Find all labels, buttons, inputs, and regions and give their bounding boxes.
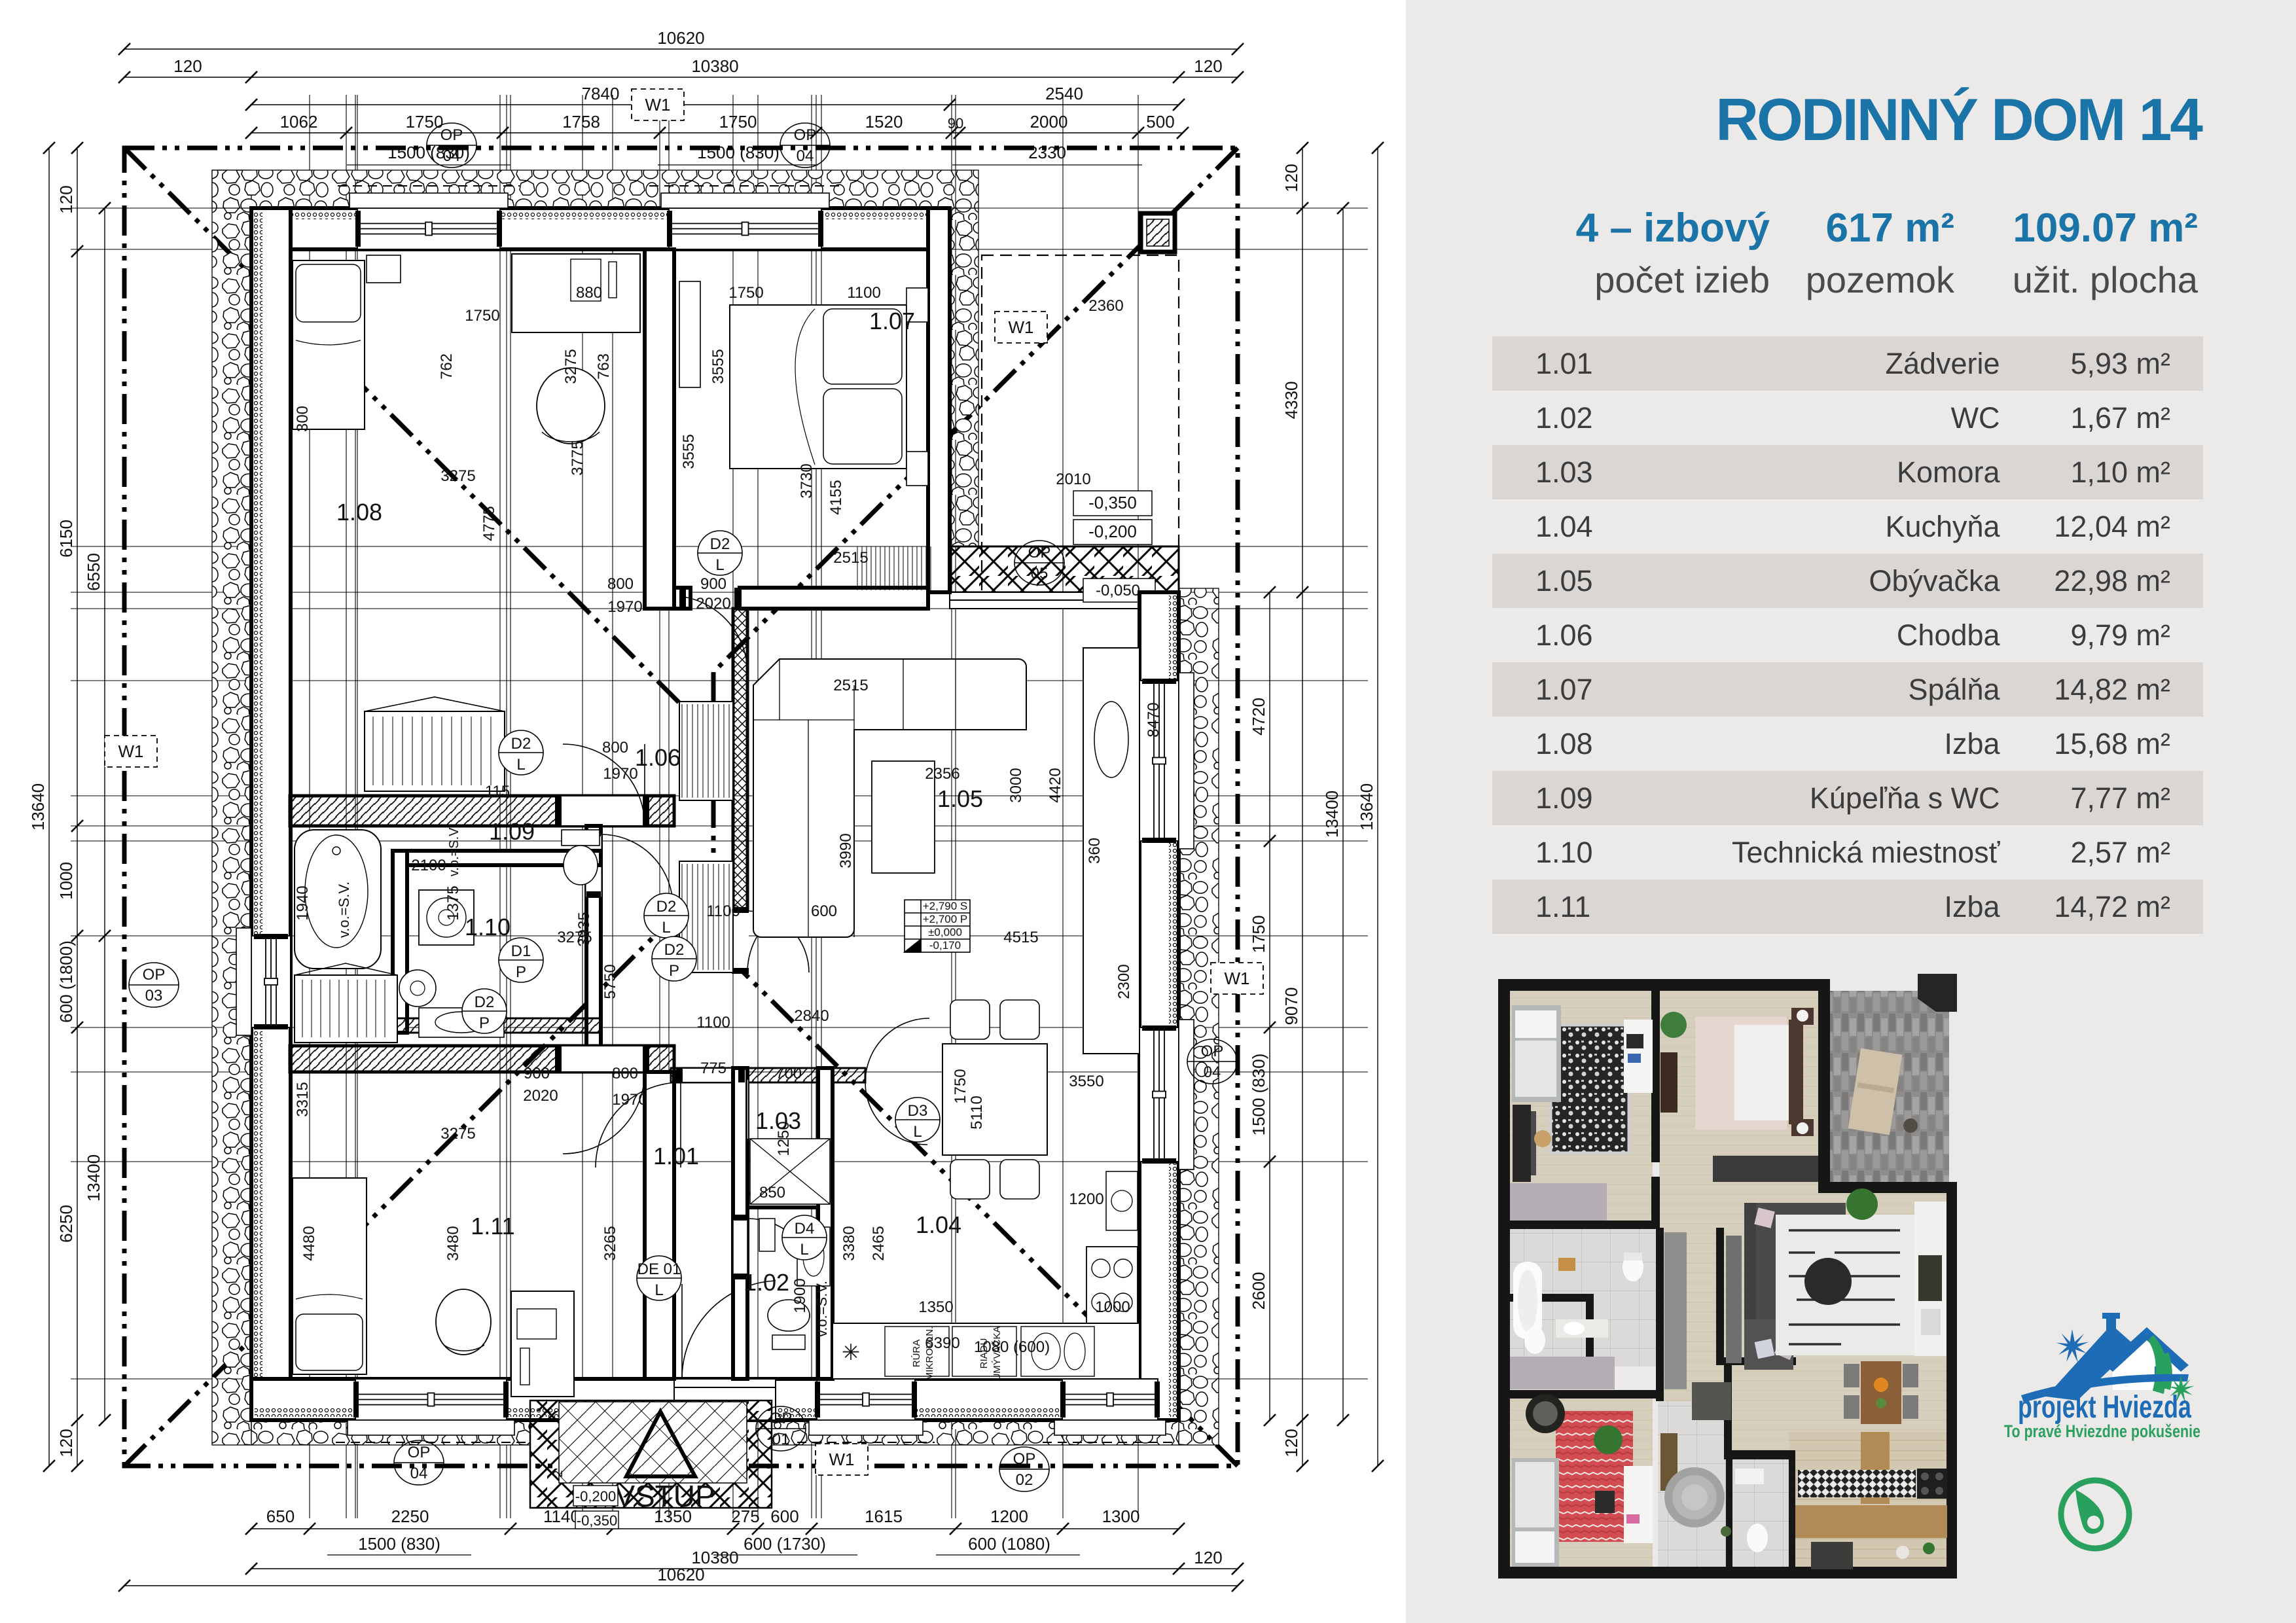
svg-text:1100: 1100 (847, 284, 881, 302)
svg-text:1758: 1758 (562, 112, 600, 132)
svg-text:1.11: 1.11 (471, 1213, 514, 1240)
svg-text:600: 600 (770, 1507, 798, 1526)
svg-text:04: 04 (797, 147, 814, 165)
svg-text:3775: 3775 (569, 440, 586, 475)
svg-text:04: 04 (1204, 1063, 1221, 1081)
svg-text:650: 650 (266, 1507, 295, 1526)
svg-text:D1: D1 (511, 942, 531, 960)
svg-text:1000: 1000 (56, 862, 76, 900)
svg-text:2600: 2600 (1249, 1272, 1268, 1310)
svg-text:6250: 6250 (56, 1205, 76, 1243)
svg-text:W1: W1 (829, 1450, 855, 1469)
svg-text:10620: 10620 (657, 1565, 704, 1584)
svg-text:13640: 13640 (28, 783, 48, 830)
svg-text:v.o.=S.V.: v.o.=S.V. (814, 1281, 830, 1337)
svg-text:3990: 3990 (837, 833, 855, 868)
svg-text:3935: 3935 (575, 912, 593, 946)
svg-text:3555: 3555 (680, 434, 698, 469)
svg-text:3380: 3380 (840, 1226, 858, 1260)
svg-text:L: L (913, 1123, 922, 1141)
svg-text:600 (1730): 600 (1730) (744, 1534, 826, 1554)
svg-text:1200: 1200 (1069, 1190, 1103, 1208)
svg-text:4515: 4515 (1003, 929, 1038, 946)
svg-text:L: L (655, 1281, 663, 1299)
svg-text:1940: 1940 (294, 885, 312, 920)
svg-text:500: 500 (1146, 112, 1174, 132)
svg-text:+2,700 P: +2,700 P (923, 913, 968, 925)
svg-text:1080 (600): 1080 (600) (974, 1338, 1050, 1356)
svg-text:2515: 2515 (833, 549, 868, 567)
svg-text:1140: 1140 (543, 1507, 580, 1526)
svg-text:1750: 1750 (1249, 916, 1268, 954)
svg-text:D2: D2 (656, 898, 677, 916)
svg-text:850: 850 (759, 1184, 785, 1202)
svg-text:2360: 2360 (1088, 297, 1123, 315)
svg-text:1750: 1750 (406, 112, 444, 132)
svg-text:10620: 10620 (657, 28, 704, 48)
svg-text:115: 115 (485, 783, 510, 800)
svg-text:2100: 2100 (411, 857, 446, 874)
svg-text:1000: 1000 (1095, 1298, 1130, 1316)
svg-text:2020: 2020 (696, 595, 730, 613)
svg-text:05: 05 (1031, 565, 1049, 582)
svg-text:120: 120 (1282, 1429, 1301, 1457)
svg-text:4480: 4480 (300, 1226, 318, 1260)
svg-text:900: 900 (524, 1065, 550, 1082)
svg-text:3275: 3275 (562, 349, 580, 383)
svg-text:800: 800 (602, 739, 628, 757)
svg-text:OP: OP (440, 126, 463, 144)
svg-text:1200: 1200 (990, 1507, 1028, 1526)
svg-text:120: 120 (173, 56, 202, 76)
svg-text:1062: 1062 (280, 112, 318, 132)
svg-text:1350: 1350 (918, 1298, 953, 1316)
svg-text:775: 775 (700, 1060, 726, 1077)
svg-text:7840: 7840 (582, 84, 620, 103)
svg-text:360: 360 (1086, 838, 1103, 864)
svg-text:W1: W1 (645, 95, 671, 115)
svg-text:700: 700 (776, 1065, 802, 1082)
svg-text:2250: 2250 (391, 1507, 429, 1526)
svg-text:1100: 1100 (706, 902, 740, 920)
svg-text:5750: 5750 (601, 964, 619, 999)
svg-text:1750: 1750 (719, 112, 757, 132)
svg-text:1.01: 1.01 (653, 1143, 699, 1169)
svg-text:1900: 1900 (791, 1278, 809, 1313)
svg-text:04: 04 (443, 147, 461, 165)
svg-text:4420: 4420 (1047, 768, 1064, 802)
svg-text:4775: 4775 (480, 506, 498, 541)
svg-text:01: 01 (772, 1431, 790, 1448)
svg-text:3550: 3550 (1069, 1073, 1103, 1090)
svg-text:-0,170: -0,170 (929, 939, 961, 952)
svg-text:W1: W1 (1225, 969, 1250, 988)
svg-text:D2: D2 (664, 941, 685, 959)
svg-text:1970: 1970 (603, 765, 637, 783)
svg-text:1.06: 1.06 (635, 744, 681, 771)
svg-text:2010: 2010 (1056, 471, 1090, 488)
svg-text:2840: 2840 (794, 1007, 829, 1025)
svg-text:1750: 1750 (465, 307, 499, 325)
svg-text:3555: 3555 (709, 349, 727, 383)
svg-text:L: L (662, 919, 670, 936)
svg-text:DE 01: DE 01 (637, 1260, 681, 1278)
svg-text:13640: 13640 (1357, 783, 1376, 830)
svg-text:2465: 2465 (870, 1226, 888, 1260)
svg-text:L: L (800, 1241, 808, 1258)
svg-text:800: 800 (607, 575, 634, 593)
svg-text:OP: OP (770, 1410, 793, 1427)
svg-text:2: 2 (551, 1470, 565, 1477)
svg-text:3315: 3315 (294, 1082, 312, 1116)
svg-text:+2,790 S: +2,790 S (923, 900, 968, 912)
svg-text:RÚRA: RÚRA (911, 1340, 922, 1368)
svg-text:120: 120 (56, 1429, 76, 1457)
svg-text:D3: D3 (908, 1102, 928, 1120)
svg-text:±0,000: ±0,000 (928, 926, 962, 938)
svg-text:800: 800 (612, 1065, 638, 1082)
svg-text:3000: 3000 (1007, 768, 1025, 802)
svg-text:W1: W1 (118, 741, 144, 761)
svg-text:-0,050: -0,050 (1096, 582, 1140, 599)
svg-text:-0,200: -0,200 (575, 1488, 616, 1505)
svg-text:120: 120 (56, 185, 76, 213)
svg-text:300: 300 (294, 406, 312, 432)
svg-text:1.05: 1.05 (937, 785, 983, 812)
svg-text:1520: 1520 (865, 112, 903, 132)
svg-text:D4: D4 (795, 1220, 815, 1238)
svg-text:2540: 2540 (1045, 84, 1083, 103)
svg-text:1250: 1250 (775, 1121, 793, 1156)
svg-text:1.09: 1.09 (489, 818, 535, 845)
svg-text:3730: 3730 (798, 463, 816, 498)
svg-text:VSTUP: VSTUP (615, 1479, 715, 1513)
svg-text:4330: 4330 (1282, 382, 1301, 419)
svg-text:P: P (516, 963, 526, 981)
svg-text:-0,350: -0,350 (1088, 493, 1137, 512)
svg-text:600 (1080): 600 (1080) (968, 1534, 1050, 1554)
svg-text:D2: D2 (710, 535, 730, 553)
svg-text:OP: OP (1201, 1043, 1224, 1060)
svg-text:120: 120 (1194, 56, 1222, 76)
svg-text:880: 880 (576, 284, 602, 302)
svg-text:763: 763 (595, 353, 613, 380)
svg-text:1.10: 1.10 (465, 914, 511, 940)
svg-text:1375: 1375 (444, 885, 462, 920)
svg-text:3275: 3275 (440, 1125, 475, 1143)
svg-text:6390: 6390 (925, 1334, 960, 1352)
svg-text:3265: 3265 (601, 1226, 619, 1260)
svg-text:1750: 1750 (728, 284, 763, 302)
svg-text:900: 900 (700, 575, 726, 593)
svg-text:6550: 6550 (84, 553, 103, 591)
svg-text:1750: 1750 (952, 1069, 969, 1103)
svg-text:OP: OP (1013, 1450, 1036, 1468)
svg-text:2515: 2515 (833, 677, 868, 694)
svg-text:D2: D2 (511, 735, 531, 753)
svg-text:OP: OP (794, 126, 817, 144)
svg-text:275: 275 (731, 1507, 759, 1526)
svg-text:✳: ✳ (842, 1340, 861, 1365)
svg-text:1.07: 1.07 (869, 308, 915, 334)
svg-text:762: 762 (438, 353, 456, 380)
svg-text:OP: OP (1028, 544, 1051, 562)
svg-text:5110: 5110 (968, 1096, 986, 1130)
svg-text:1970: 1970 (612, 1091, 647, 1109)
svg-text:13400: 13400 (1322, 791, 1342, 838)
svg-text:1500 (830): 1500 (830) (358, 1534, 440, 1554)
svg-text:6150: 6150 (56, 520, 76, 558)
svg-text:W1: W1 (1009, 317, 1034, 337)
svg-text:4155: 4155 (827, 480, 845, 514)
svg-text:2020: 2020 (523, 1087, 558, 1105)
svg-text:L: L (516, 756, 525, 774)
svg-text:D2: D2 (475, 993, 495, 1011)
svg-text:1970: 1970 (607, 598, 642, 616)
svg-text:1.02: 1.02 (744, 1269, 789, 1296)
svg-text:2300: 2300 (1115, 964, 1133, 999)
svg-text:v.o.=S.V.: v.o.=S.V. (336, 882, 352, 938)
svg-text:120: 120 (1194, 1548, 1222, 1567)
svg-text:120: 120 (1282, 164, 1301, 192)
svg-text:03: 03 (145, 987, 163, 1005)
svg-text:8470: 8470 (1145, 702, 1162, 737)
svg-text:1615: 1615 (865, 1507, 903, 1526)
svg-text:02: 02 (1016, 1471, 1033, 1489)
svg-text:1.04: 1.04 (916, 1211, 961, 1238)
svg-text:-0,200: -0,200 (1088, 522, 1137, 541)
svg-text:v.o.=S.V.: v.o.=S.V. (447, 825, 461, 876)
svg-text:9070: 9070 (1282, 988, 1301, 1026)
svg-text:4720: 4720 (1249, 698, 1268, 736)
svg-text:600 (1800): 600 (1800) (56, 940, 76, 1023)
svg-text:3480: 3480 (444, 1226, 462, 1260)
svg-text:1300: 1300 (1102, 1507, 1140, 1526)
svg-text:3275: 3275 (440, 467, 475, 485)
svg-text:1500 (830): 1500 (830) (1249, 1054, 1268, 1136)
svg-text:OP: OP (408, 1444, 431, 1461)
svg-text:2000: 2000 (1030, 112, 1068, 132)
svg-text:P: P (669, 962, 679, 980)
svg-text:04: 04 (410, 1465, 428, 1482)
svg-text:600: 600 (811, 902, 837, 920)
svg-text:L: L (715, 556, 724, 574)
svg-text:P: P (479, 1014, 490, 1032)
svg-text:OP: OP (143, 966, 166, 984)
svg-text:projekt Hviezda: projekt Hviezda (2018, 1390, 2191, 1425)
svg-text:1.08: 1.08 (336, 499, 382, 526)
svg-text:-0,350: -0,350 (577, 1512, 617, 1529)
svg-text:To pravé Hviezdne pokušenie: To pravé Hviezdne pokušenie (2004, 1421, 2200, 1441)
svg-text:10380: 10380 (691, 56, 738, 76)
svg-text:2356: 2356 (925, 765, 960, 783)
svg-text:1100: 1100 (696, 1014, 730, 1031)
